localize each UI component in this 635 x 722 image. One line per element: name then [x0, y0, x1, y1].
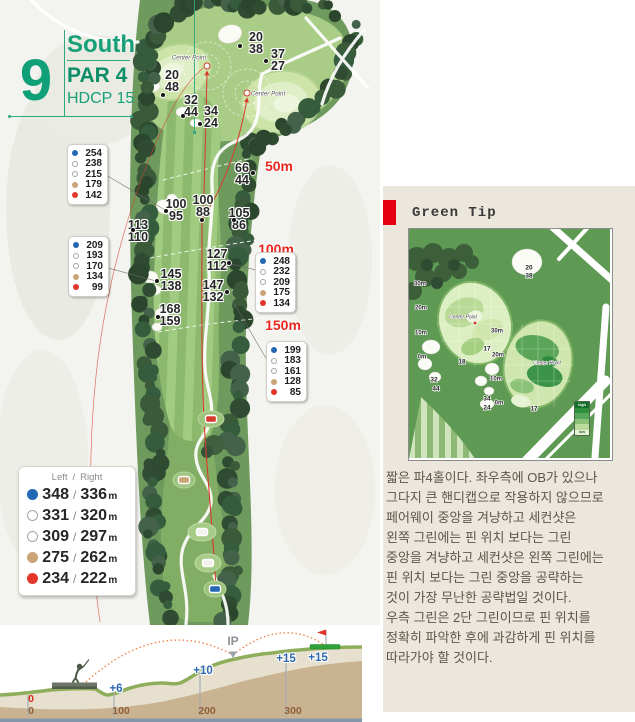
tan-tee-dot [260, 290, 266, 296]
white-tee-marker [197, 529, 208, 536]
distance-row: 175 [260, 288, 290, 299]
par-label: PAR 4 [67, 64, 127, 88]
distance-value: 209 [269, 277, 290, 288]
legend-distance: 262 [80, 549, 107, 567]
distance-value: 254 [81, 148, 102, 159]
legend-distance: m [108, 512, 117, 526]
tan-tee-dot [73, 274, 79, 280]
red-tee-dot [271, 389, 277, 395]
distance-row: 99 [73, 282, 103, 293]
legend-distance: 320 [80, 507, 107, 525]
distance-value: 232 [269, 266, 290, 277]
red-tee-marker [206, 416, 217, 423]
white-tee-dot [72, 161, 78, 167]
tan-tee-marker [179, 477, 190, 484]
legend-distance: / [73, 509, 76, 523]
distance-row: 209 [73, 240, 103, 251]
distance-row: 134 [73, 272, 103, 283]
golfer-silhouette [52, 660, 97, 690]
legend-row: 348/336m [27, 484, 127, 505]
distance-row: 128 [271, 377, 301, 388]
tan-tee-dot [271, 379, 277, 385]
legend-distance: 336 [80, 486, 107, 504]
legend-header: Left/Right [27, 472, 127, 483]
distance-badge: 254238215179142 [67, 144, 108, 205]
white-tee-dot [73, 263, 79, 269]
distance-value: 134 [82, 271, 103, 282]
white-tee-dot [260, 269, 266, 275]
distance-value: 161 [280, 366, 301, 377]
distance-row: 170 [73, 261, 103, 272]
rule-end-dot [8, 115, 11, 118]
tee-distance-legend: Left/Right 348/336m331/320m309/297m275/2… [18, 466, 136, 596]
distance-row: 199 [271, 345, 301, 356]
red-tee-dot [73, 284, 79, 290]
header-rule-under-title [67, 60, 130, 61]
white-tee-dot [27, 510, 38, 521]
hole-number: 9 [6, 52, 66, 110]
distance-row: 142 [72, 190, 102, 201]
distance-value: 248 [269, 256, 290, 267]
distance-row: 134 [260, 298, 290, 309]
distance-row: 248 [260, 256, 290, 267]
red-tee-dot [27, 573, 38, 584]
distance-row: 179 [72, 180, 102, 191]
distance-value: 170 [82, 261, 103, 272]
distance-row: 254 [72, 148, 102, 159]
white-tee-dot [27, 531, 38, 542]
flag-icon [317, 630, 326, 636]
distance-row: 193 [73, 251, 103, 262]
legend-distance: 331 [42, 507, 69, 525]
blue-tee-dot [72, 150, 78, 156]
legend-distance: 222 [80, 570, 107, 588]
distance-value: 142 [81, 190, 102, 201]
blue-tee-marker [210, 586, 221, 593]
scale-high-label: high [578, 403, 586, 407]
header-rule-bottom [10, 116, 132, 117]
golf-hole-guide-page: 9 South PAR 4 HDCP 15 Left/Right 348/336… [0, 0, 635, 722]
distance-row: 232 [260, 267, 290, 278]
green-tip-text: 짧은 파4홀이다. 좌우측에 OB가 있으나 그다지 큰 핸디캡으로 작용하지 … [386, 468, 632, 668]
legend-row: 309/297m [27, 526, 127, 547]
white-tee-dot [260, 279, 266, 285]
white-tee-marker-2 [203, 560, 214, 567]
distance-value: 128 [280, 376, 301, 387]
hdcp-label: HDCP 15 [67, 90, 134, 108]
distance-row: 161 [271, 366, 301, 377]
legend-distance: 309 [42, 528, 69, 546]
legend-distance: m [108, 533, 117, 547]
white-tee-dot [271, 358, 277, 364]
legend-row: 234/222m [27, 568, 127, 589]
elevation-scale-legend: high low [574, 401, 590, 436]
distance-value: 193 [82, 250, 103, 261]
legend-distance: / [73, 530, 76, 544]
red-accent-bar [383, 200, 396, 225]
distance-row: 209 [260, 277, 290, 288]
distance-value: 183 [280, 355, 301, 366]
legend-distance: 297 [80, 528, 107, 546]
blue-tee-dot [73, 242, 79, 248]
distance-value: 209 [82, 240, 103, 251]
distance-value: 99 [82, 282, 103, 293]
distance-row: 238 [72, 159, 102, 170]
distance-row: 85 [271, 387, 301, 398]
tan-tee-dot [27, 552, 38, 563]
legend-distance: m [108, 554, 117, 568]
distance-value: 175 [269, 287, 290, 298]
legend-distance: / [73, 488, 76, 502]
distance-value: 179 [81, 179, 102, 190]
distance-value: 85 [280, 387, 301, 398]
blue-tee-dot [260, 258, 266, 264]
putting-green [310, 645, 340, 650]
distance-row: 183 [271, 356, 301, 367]
red-tee-dot [72, 192, 78, 198]
distance-value: 199 [280, 345, 301, 356]
legend-distance: 275 [42, 549, 69, 567]
fairway [154, 90, 221, 442]
distance-badge: 19918316112885 [266, 341, 307, 402]
course-name: South [67, 31, 135, 59]
white-tee-dot [72, 171, 78, 177]
legend-distance: m [108, 575, 117, 589]
legend-distance: m [108, 491, 117, 505]
blue-tee-dot [271, 347, 277, 353]
blue-tee-dot [27, 489, 38, 500]
header-rule-vertical [64, 30, 65, 116]
legend-distance: 234 [42, 570, 69, 588]
tan-tee-dot [72, 182, 78, 188]
elevation-profile [0, 625, 362, 722]
green-tip-title: Green Tip [412, 205, 497, 221]
scale-low-label: low [579, 430, 585, 434]
white-tee-dot [271, 368, 277, 374]
rule-end-dot [130, 115, 133, 118]
legend-distance: 348 [42, 486, 69, 504]
legend-distance: / [73, 551, 76, 565]
distance-value: 238 [81, 158, 102, 169]
legend-distance: / [73, 572, 76, 586]
green-tip-panel: Green Tip [383, 186, 635, 712]
legend-row: 275/262m [27, 547, 127, 568]
distance-value: 134 [269, 298, 290, 309]
distance-row: 215 [72, 169, 102, 180]
legend-row: 331/320m [27, 505, 127, 526]
distance-badge: 20919317013499 [68, 236, 109, 297]
distance-value: 215 [81, 169, 102, 180]
distance-badge: 248232209175134 [255, 252, 296, 313]
red-tee-dot [260, 300, 266, 306]
white-tee-dot [73, 253, 79, 259]
